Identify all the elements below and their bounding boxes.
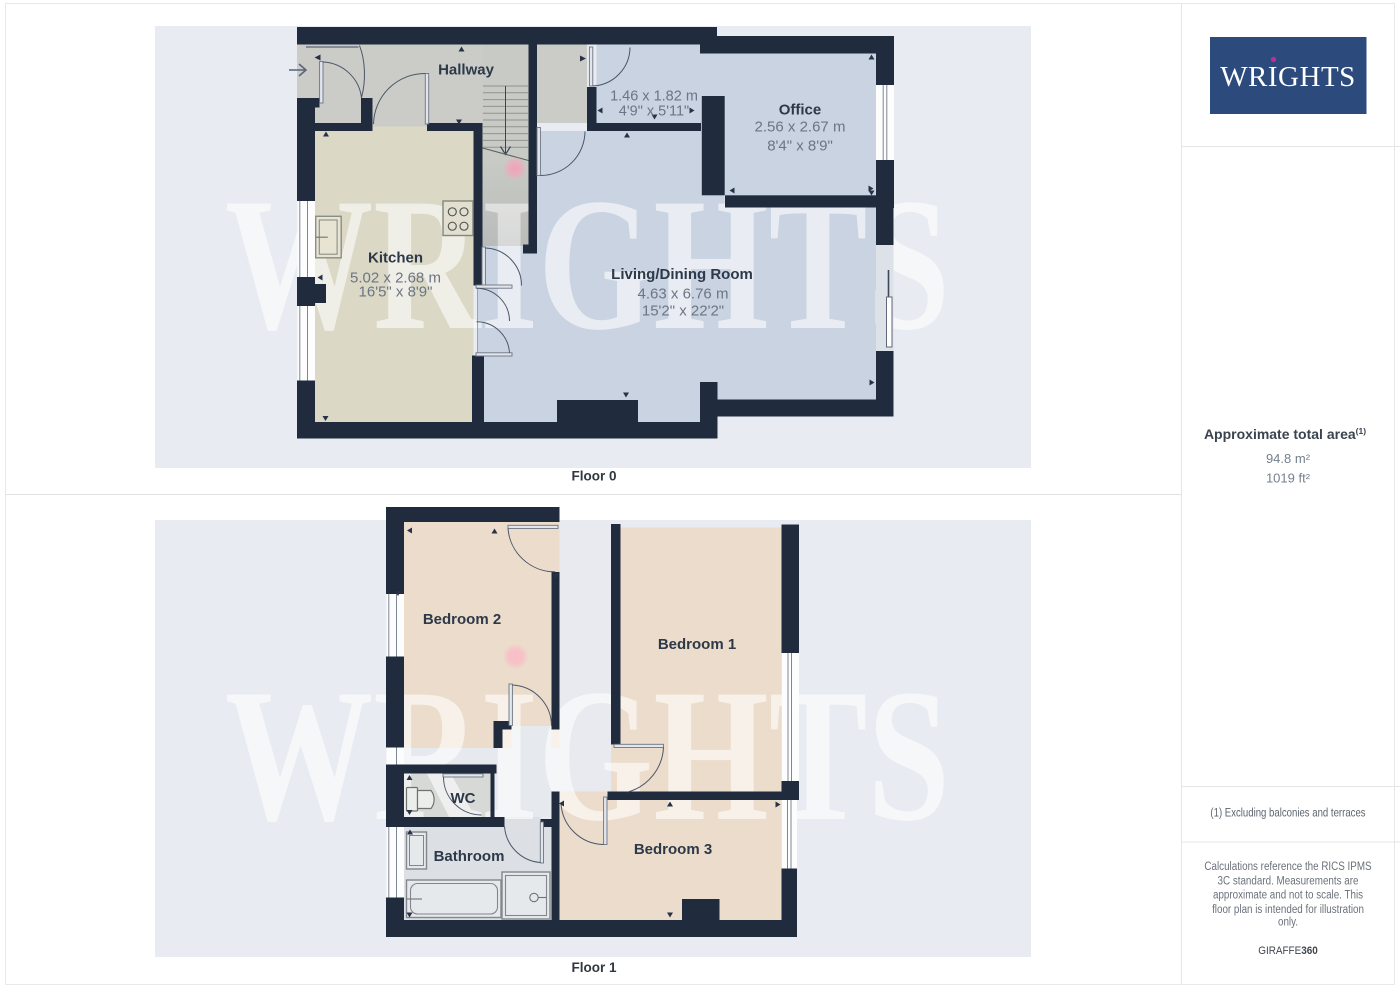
svg-text:1019 ft²: 1019 ft² — [1266, 471, 1311, 486]
svg-text:Floor 1: Floor 1 — [571, 960, 616, 975]
svg-text:15'2" x 22'2": 15'2" x 22'2" — [642, 303, 724, 320]
svg-text:16'5" x 8'9": 16'5" x 8'9" — [359, 284, 433, 301]
svg-text:Calculations reference the RIC: Calculations reference the RICS IPMS — [1204, 860, 1371, 873]
svg-text:Bedroom 2: Bedroom 2 — [423, 611, 501, 628]
svg-text:Living/Dining Room: Living/Dining Room — [611, 266, 753, 283]
svg-text:Kitchen: Kitchen — [368, 250, 423, 267]
svg-text:Office: Office — [779, 102, 822, 119]
svg-text:2.56 x 2.67 m: 2.56 x 2.67 m — [755, 119, 846, 136]
svg-text:WRIGHTS: WRIGHTS — [1220, 61, 1356, 93]
svg-text:1.46 x 1.82 m: 1.46 x 1.82 m — [610, 89, 698, 105]
svg-text:only.: only. — [1278, 916, 1298, 929]
svg-text:floor plan is intended for ill: floor plan is intended for illustration — [1212, 903, 1364, 916]
svg-text:4'9" x 5'11": 4'9" x 5'11" — [619, 104, 689, 120]
svg-text:Bathroom: Bathroom — [434, 848, 505, 865]
svg-text:Hallway: Hallway — [438, 62, 495, 79]
svg-text:94.8 m²: 94.8 m² — [1266, 451, 1311, 466]
svg-text:Approximate total area(1): Approximate total area(1) — [1204, 426, 1366, 442]
svg-text:Bedroom 3: Bedroom 3 — [634, 841, 712, 858]
svg-text:WC: WC — [451, 790, 476, 807]
svg-text:4.63 x 6.76 m: 4.63 x 6.76 m — [638, 286, 729, 303]
svg-text:(1) Excluding balconies and te: (1) Excluding balconies and terraces — [1210, 807, 1366, 820]
svg-text:8'4" x 8'9": 8'4" x 8'9" — [767, 138, 833, 155]
svg-text:WRIGHTS: WRIGHTS — [225, 159, 950, 370]
svg-text:Floor 0: Floor 0 — [571, 469, 616, 484]
svg-text:WRIGHTS: WRIGHTS — [225, 650, 950, 861]
svg-text:3C standard. Measurements are: 3C standard. Measurements are — [1218, 874, 1359, 887]
svg-text:Bedroom 1: Bedroom 1 — [658, 636, 736, 653]
svg-text:GIRAFFE360: GIRAFFE360 — [1258, 946, 1318, 957]
svg-text:approximate and not to scale.: approximate and not to scale. This — [1213, 889, 1363, 902]
